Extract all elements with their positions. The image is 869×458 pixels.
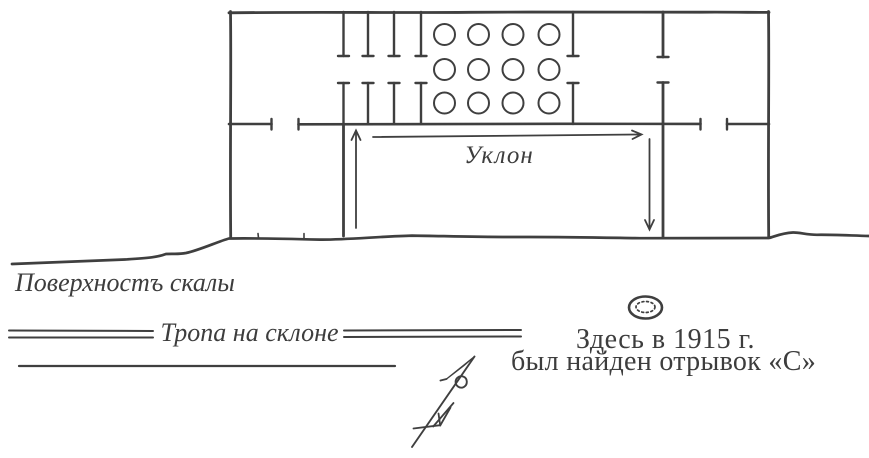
svg-text:Тропа на склоне: Тропа на склоне: [160, 318, 338, 347]
svg-text:Уклон: Уклон: [464, 142, 534, 169]
svg-text:был найден отрывок «С»: был найден отрывок «С»: [511, 346, 816, 377]
svg-text:Поверхностъ скалы: Поверхностъ скалы: [14, 268, 235, 297]
